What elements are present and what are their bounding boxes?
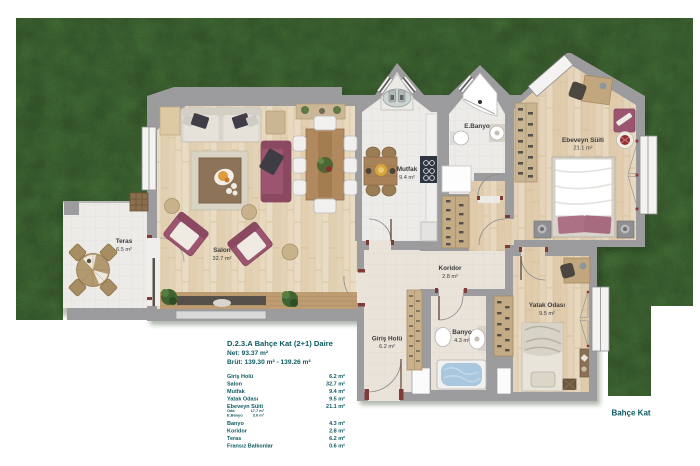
svg-text:9.5 m²: 9.5 m² bbox=[329, 396, 345, 403]
svg-text:3.6 m²: 3.6 m² bbox=[253, 413, 265, 418]
svg-text:9.5 m²: 9.5 m² bbox=[539, 311, 555, 317]
svg-text:Giriş Holü: Giriş Holü bbox=[227, 374, 253, 380]
svg-text:E.Banyo: E.Banyo bbox=[227, 413, 243, 418]
svg-text:Teras: Teras bbox=[227, 436, 241, 442]
svg-text:Banyo: Banyo bbox=[227, 421, 244, 427]
svg-text:32.7 m²: 32.7 m² bbox=[213, 256, 232, 262]
svg-text:6.2 m²: 6.2 m² bbox=[379, 344, 395, 350]
svg-text:Koridor: Koridor bbox=[227, 429, 248, 435]
svg-text:Koridor: Koridor bbox=[438, 265, 462, 272]
svg-text:Banyo: Banyo bbox=[452, 329, 472, 336]
svg-text:Fransız Balkonlar: Fransız Balkonlar bbox=[227, 444, 274, 450]
svg-text:32.7 m²: 32.7 m² bbox=[326, 381, 345, 388]
svg-text:Mutfak: Mutfak bbox=[397, 166, 418, 173]
svg-text:Mutfak: Mutfak bbox=[227, 389, 246, 395]
svg-text:21.1 m²: 21.1 m² bbox=[326, 403, 345, 410]
svg-text:Ebeveyn Süiti: Ebeveyn Süiti bbox=[562, 137, 604, 144]
svg-text:4.3 m²: 4.3 m² bbox=[454, 338, 470, 344]
svg-text:E.Banyo: E.Banyo bbox=[464, 123, 490, 130]
svg-text:6.2 m²: 6.2 m² bbox=[329, 435, 345, 442]
svg-text:Yatak Odası: Yatak Odası bbox=[227, 397, 259, 403]
svg-text:9.4 m²: 9.4 m² bbox=[329, 388, 345, 395]
svg-text:D.2.3.A Bahçe Kat (2+1) Daire: D.2.3.A Bahçe Kat (2+1) Daire bbox=[227, 339, 333, 348]
svg-text:0.6 m²: 0.6 m² bbox=[329, 443, 345, 450]
svg-text:2.8 m²: 2.8 m² bbox=[442, 274, 458, 280]
svg-text:2.8 m²: 2.8 m² bbox=[329, 428, 345, 435]
svg-text:6.5 m²: 6.5 m² bbox=[116, 247, 132, 253]
svg-text:Yatak Odası: Yatak Odası bbox=[529, 302, 565, 309]
svg-text:Salon: Salon bbox=[227, 382, 243, 388]
svg-text:4.3 m²: 4.3 m² bbox=[329, 420, 345, 427]
svg-text:6.2 m²: 6.2 m² bbox=[329, 373, 345, 380]
svg-text:9.4 m²: 9.4 m² bbox=[399, 175, 415, 181]
svg-text:Net: 93.37 m²: Net: 93.37 m² bbox=[227, 350, 269, 357]
svg-text:Giriş Holü: Giriş Holü bbox=[372, 336, 403, 343]
svg-text:Teras: Teras bbox=[116, 238, 133, 245]
svg-text:21.1 m²: 21.1 m² bbox=[574, 146, 593, 152]
svg-text:Brüt: 139.30 m² - 139.26 m²: Brüt: 139.30 m² - 139.26 m² bbox=[227, 359, 311, 366]
svg-text:Bahçe Kat: Bahçe Kat bbox=[611, 409, 650, 418]
svg-text:Salon: Salon bbox=[213, 247, 230, 254]
